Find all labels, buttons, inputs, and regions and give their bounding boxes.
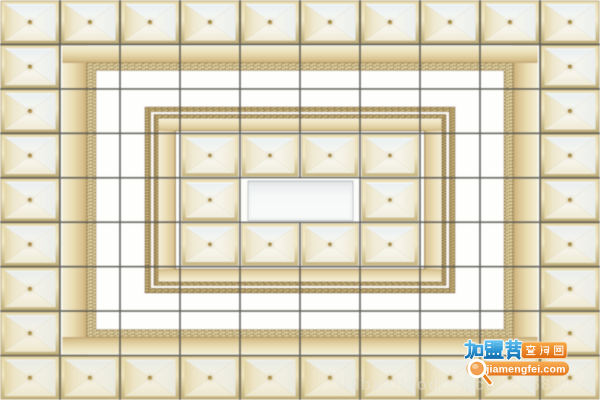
- svg-text:jinbaidiaoding.cqb2b68.com: jinbaidiaoding.cqb2b68.com: [336, 376, 595, 394]
- svg-text:jiamengfei.com: jiamengfei.com: [485, 364, 565, 376]
